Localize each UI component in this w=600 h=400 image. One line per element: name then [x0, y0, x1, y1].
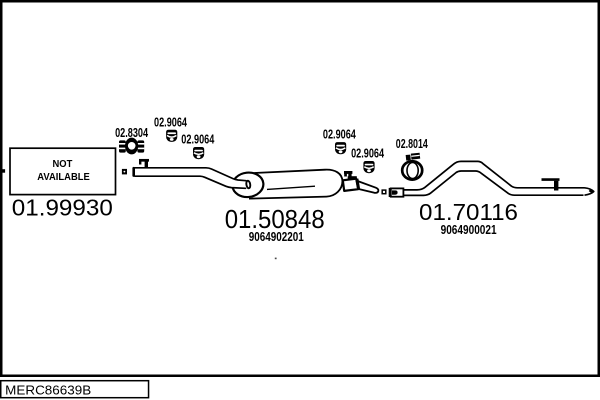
svg-text:02.9064: 02.9064 — [154, 115, 188, 130]
svg-text:9064900021: 9064900021 — [441, 222, 497, 237]
svg-text:02.9064: 02.9064 — [181, 131, 215, 146]
svg-text:02.8014: 02.8014 — [396, 136, 429, 151]
svg-text:9064902201: 9064902201 — [249, 229, 304, 244]
svg-text:AVAILABLE: AVAILABLE — [37, 172, 90, 183]
svg-text:02.9064: 02.9064 — [323, 127, 357, 142]
svg-text:01.99930: 01.99930 — [12, 195, 113, 221]
svg-text:NOT: NOT — [53, 159, 74, 170]
svg-text:02.9064: 02.9064 — [351, 145, 385, 160]
svg-text:MERC86639B: MERC86639B — [5, 382, 91, 397]
